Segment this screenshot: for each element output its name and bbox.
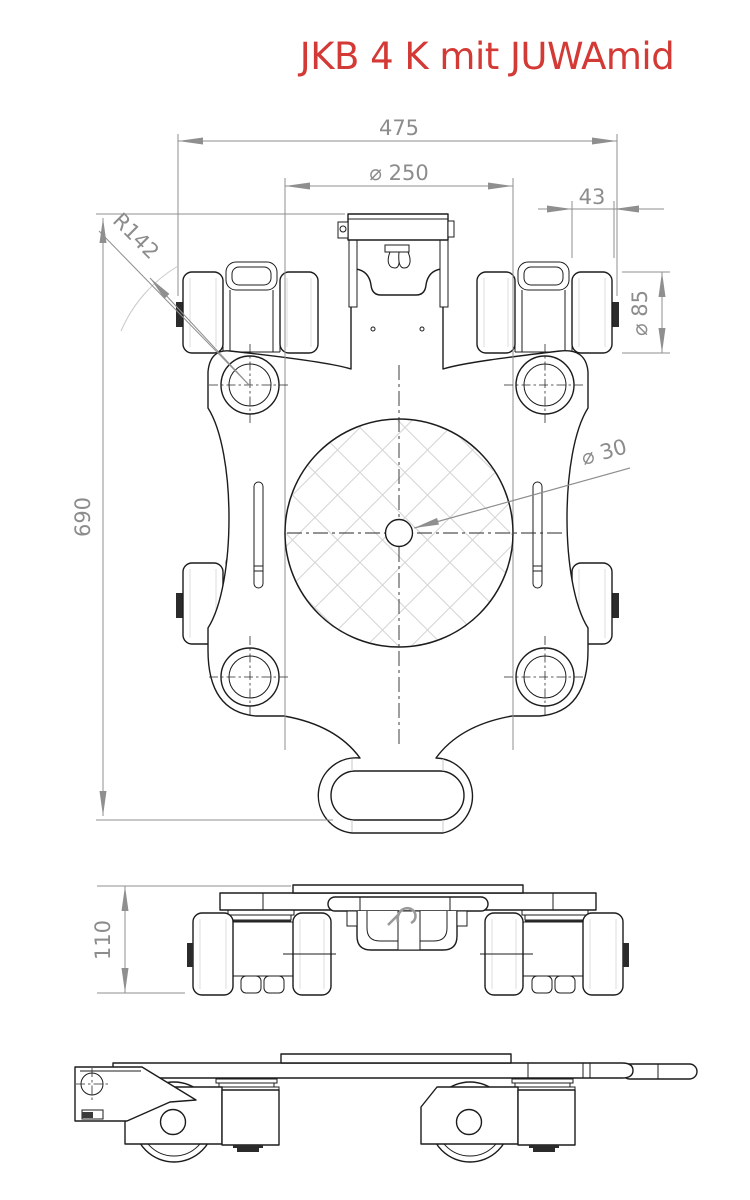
center-hole <box>386 520 413 547</box>
chassis-bar <box>113 1063 633 1078</box>
dim-label-overall-length: 690 <box>71 497 95 537</box>
technical-drawing-canvas: JKB 4 K mit JUWAmid <box>0 0 750 1200</box>
dim-label-center-hole: ⌀ 30 <box>579 435 630 470</box>
side-view <box>75 1054 697 1162</box>
dim-label-overall-width: 475 <box>379 116 419 140</box>
drawing-sheet: JKB 4 K mit JUWAmid <box>0 0 750 1200</box>
latch-claw <box>388 252 399 268</box>
wheel-assembly <box>480 910 629 995</box>
handle-cutout <box>331 771 464 820</box>
top-view: 475 ⌀ 250 43 ⌀ 85 R142 <box>71 116 670 833</box>
dim-label-turntable-diameter: ⌀ 250 <box>369 161 428 185</box>
dim-label-swing-radius: R142 <box>108 208 164 264</box>
dim-label-height: 110 <box>91 920 115 960</box>
drawing-title: JKB 4 K mit JUWAmid <box>298 35 674 78</box>
latch-claw <box>399 252 410 268</box>
wheel-unit <box>421 1079 575 1162</box>
latch <box>385 245 409 252</box>
dim-label-roller-face-width: 43 <box>579 185 606 209</box>
coupling-housing <box>328 897 488 950</box>
roller-pair <box>176 262 318 353</box>
turntable-plate <box>293 885 523 893</box>
dim-label-roller-diameter: ⌀ 85 <box>628 290 652 336</box>
dim-roller-face-width: 43 <box>538 185 664 258</box>
turntable-plate-side <box>281 1054 511 1063</box>
front-view: 110 <box>91 885 629 995</box>
dim-roller-diameter: ⌀ 85 <box>622 272 670 353</box>
dim-turntable-diameter: ⌀ 250 <box>285 161 513 186</box>
